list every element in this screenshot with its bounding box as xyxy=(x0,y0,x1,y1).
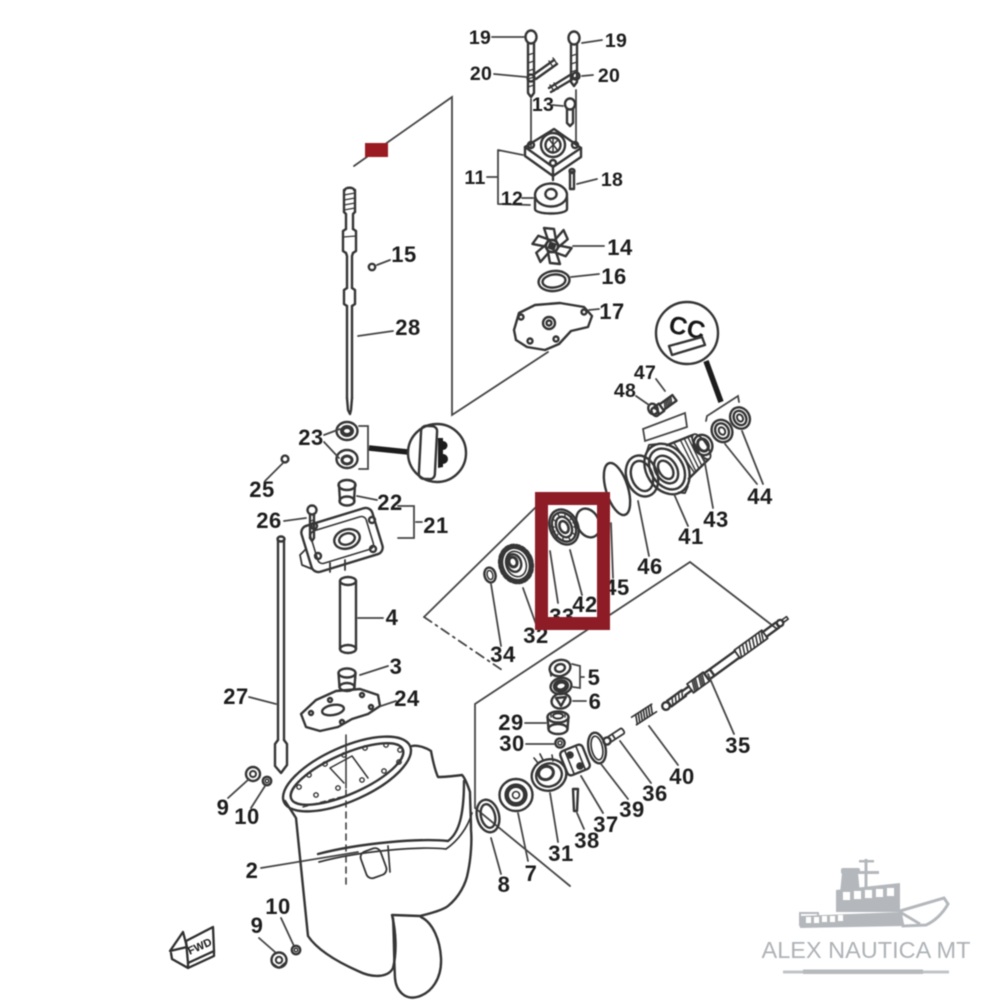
svg-text:15: 15 xyxy=(391,242,416,267)
svg-text:40: 40 xyxy=(669,764,694,789)
svg-text:23: 23 xyxy=(298,425,323,450)
svg-text:27: 27 xyxy=(223,684,248,709)
svg-text:11: 11 xyxy=(464,167,485,189)
svg-text:20: 20 xyxy=(470,63,492,85)
svg-text:31: 31 xyxy=(548,841,573,866)
svg-text:48: 48 xyxy=(614,380,636,402)
svg-text:10: 10 xyxy=(234,804,259,829)
svg-text:41: 41 xyxy=(678,524,703,549)
svg-text:28: 28 xyxy=(395,315,420,340)
svg-text:46: 46 xyxy=(637,554,662,579)
svg-text:43: 43 xyxy=(703,507,728,532)
svg-text:22: 22 xyxy=(377,490,402,515)
svg-text:ALEX NAUTICA MT: ALEX NAUTICA MT xyxy=(762,937,971,963)
svg-text:12: 12 xyxy=(501,188,523,210)
svg-text:34: 34 xyxy=(490,642,516,667)
svg-text:7: 7 xyxy=(525,861,538,886)
svg-text:44: 44 xyxy=(747,484,773,509)
svg-text:39: 39 xyxy=(619,797,644,822)
svg-text:9: 9 xyxy=(251,913,264,938)
svg-text:19: 19 xyxy=(469,27,491,49)
svg-text:18: 18 xyxy=(601,169,623,191)
svg-text:9: 9 xyxy=(217,795,230,820)
svg-text:37: 37 xyxy=(593,812,618,837)
svg-text:36: 36 xyxy=(642,781,667,806)
svg-text:16: 16 xyxy=(601,264,626,289)
svg-text:21: 21 xyxy=(423,513,448,538)
svg-text:25: 25 xyxy=(249,477,274,502)
svg-text:17: 17 xyxy=(599,299,624,324)
svg-text:13: 13 xyxy=(532,94,554,116)
svg-text:24: 24 xyxy=(394,686,420,711)
svg-text:4: 4 xyxy=(386,605,399,630)
svg-text:3: 3 xyxy=(390,654,403,679)
svg-text:6: 6 xyxy=(589,689,602,714)
svg-text:42: 42 xyxy=(572,592,597,617)
svg-text:14: 14 xyxy=(607,235,633,260)
svg-text:8: 8 xyxy=(498,872,511,897)
svg-text:47: 47 xyxy=(634,362,656,384)
svg-text:26: 26 xyxy=(256,508,281,533)
svg-text:19: 19 xyxy=(605,30,627,52)
svg-text:2: 2 xyxy=(246,858,259,883)
svg-text:10: 10 xyxy=(265,894,290,919)
svg-text:30: 30 xyxy=(499,731,524,756)
svg-text:20: 20 xyxy=(598,65,620,87)
svg-text:35: 35 xyxy=(725,733,750,758)
svg-text:5: 5 xyxy=(588,665,601,690)
